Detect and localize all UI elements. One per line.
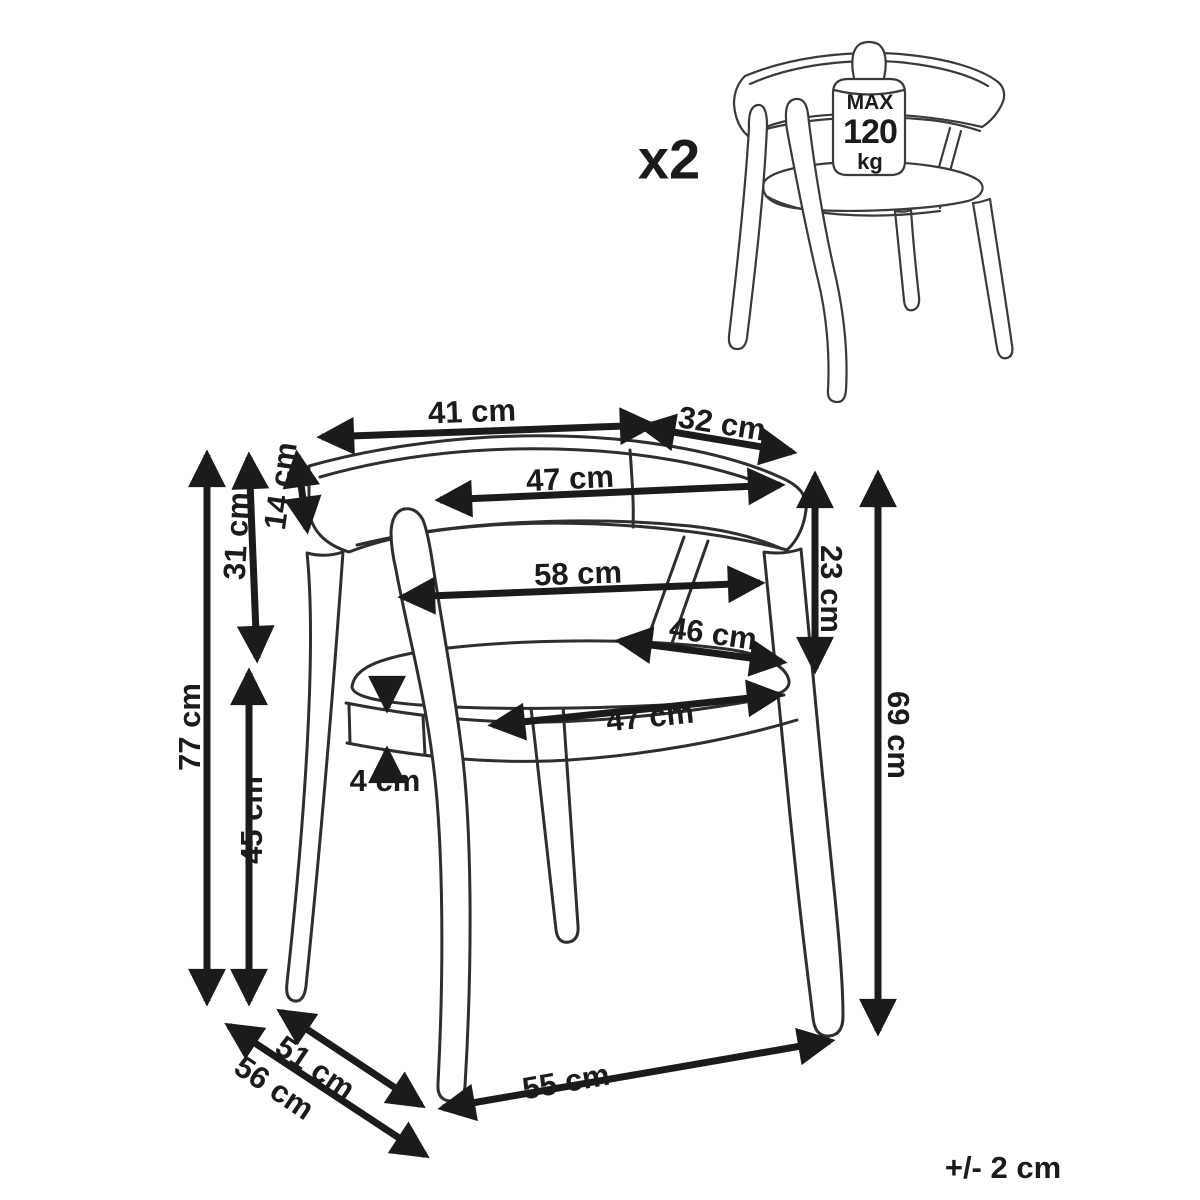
rear-left-leg (529, 689, 578, 942)
weight-knob (852, 42, 885, 82)
quantity-label: x2 (638, 127, 700, 192)
dimension-label-seat-height: 45 cm (234, 776, 270, 864)
weight-capacity-text: MAX 120 kg (831, 92, 909, 173)
weight-capacity-value: 120 (831, 115, 909, 149)
mini-rear-left-leg (895, 210, 919, 310)
mini-front-left-leg (729, 105, 767, 349)
chair-dimension-diagram (0, 0, 1200, 1200)
mini-rear-right-leg (973, 199, 1012, 358)
dimension-label-backrest-to-seat: 31 cm (217, 491, 258, 581)
dimension-label-armrest-height: 69 cm (880, 691, 916, 779)
dimension-label-total-height: 77 cm (172, 683, 208, 771)
dimension-label-top-width-left: 41 cm (427, 392, 516, 431)
weight-capacity-prefix: MAX (831, 92, 909, 113)
dim-arrow-base-width (443, 1041, 830, 1108)
tolerance-note: +/- 2 cm (945, 1150, 1061, 1186)
dimension-label-armrest-span-width: 58 cm (533, 554, 622, 593)
front-left-leg (287, 552, 343, 1001)
dimension-label-frame-thickness: 4 cm (350, 763, 421, 799)
dimension-label-backrest-inner-width: 47 cm (525, 459, 615, 500)
weight-capacity-unit: kg (831, 151, 909, 173)
dimension-label-backrest-drop-right: 23 cm (813, 545, 849, 633)
seat-rail (347, 720, 797, 761)
